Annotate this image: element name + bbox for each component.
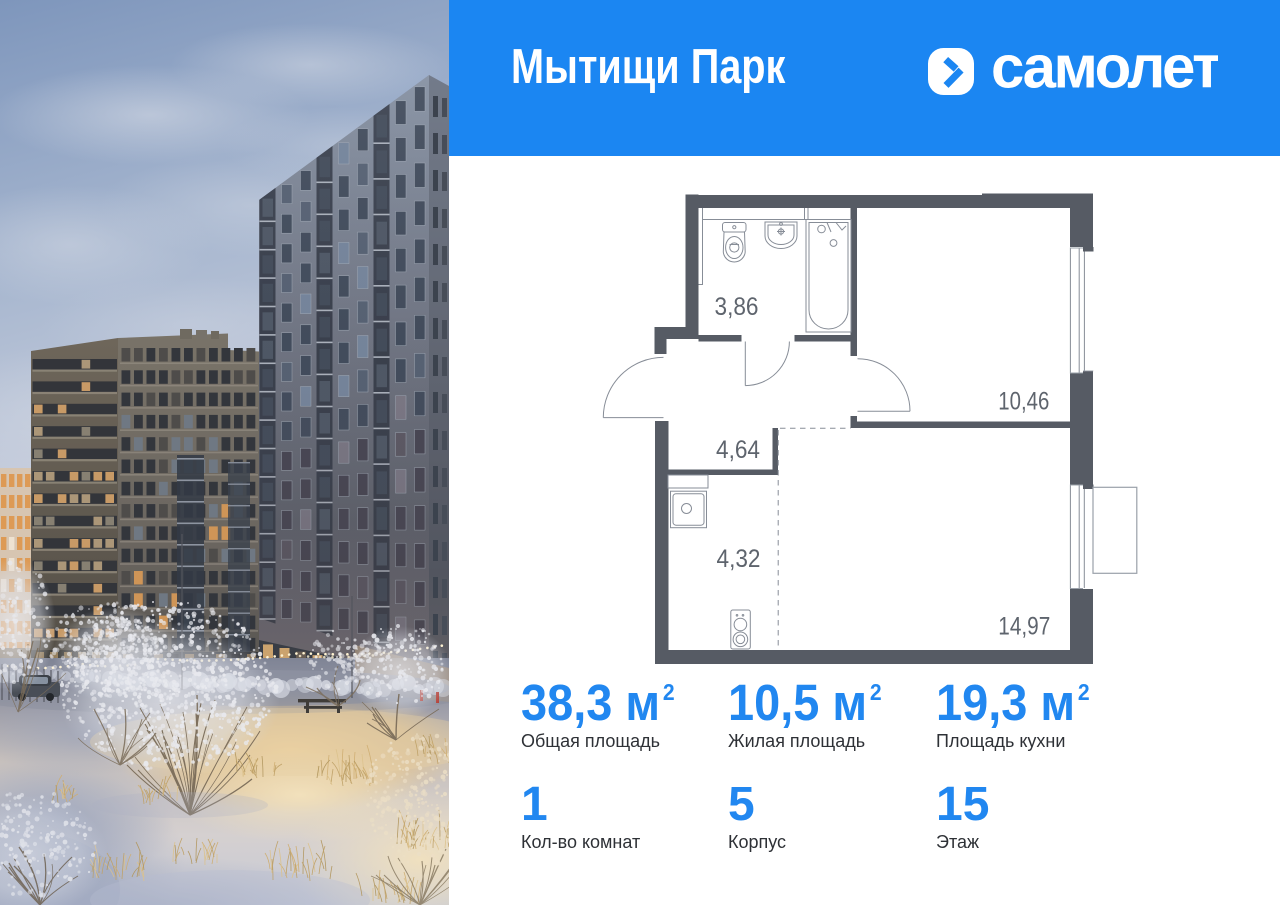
svg-text:10,46: 10,46 — [998, 388, 1049, 416]
svg-text:4,32: 4,32 — [717, 545, 761, 573]
svg-text:4,64: 4,64 — [716, 436, 760, 464]
svg-text:3,86: 3,86 — [715, 293, 759, 321]
svg-text:14,97: 14,97 — [998, 613, 1050, 641]
